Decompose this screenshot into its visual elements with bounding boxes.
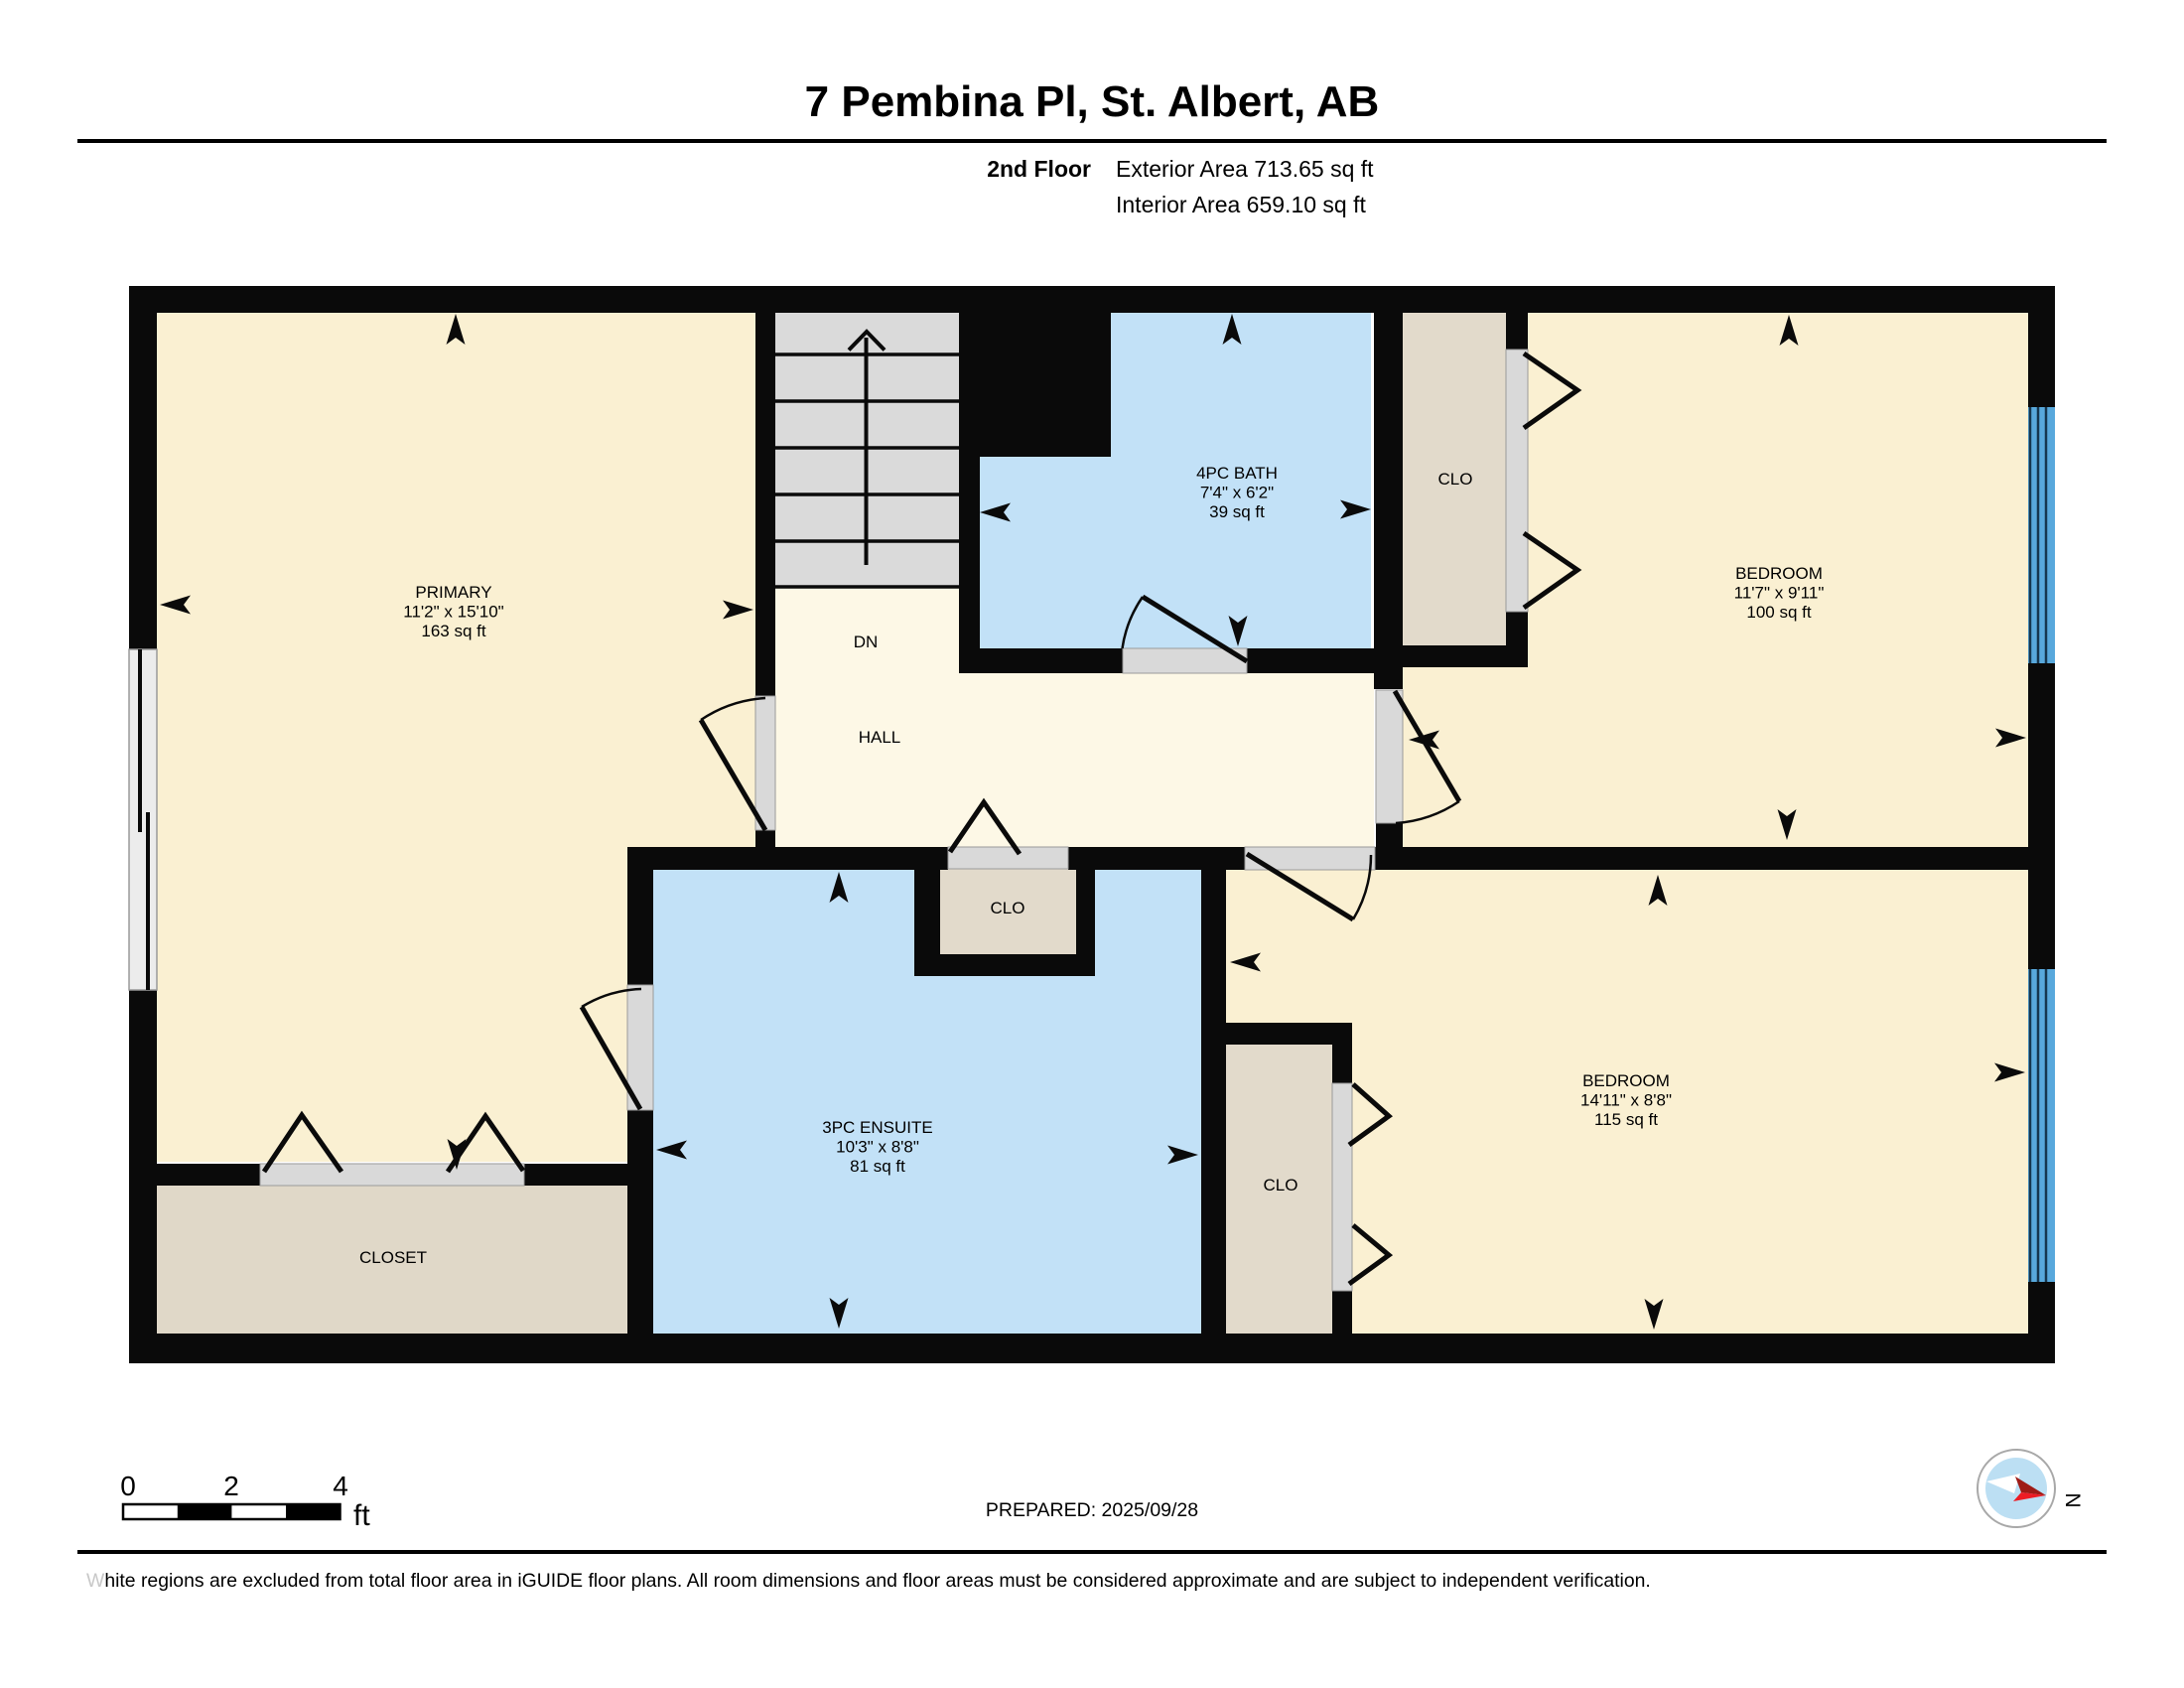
svg-text:DN: DN (854, 633, 879, 651)
svg-text:BEDROOM: BEDROOM (1582, 1071, 1670, 1090)
svg-text:100 sq ft: 100 sq ft (1746, 603, 1811, 622)
svg-text:115 sq ft: 115 sq ft (1594, 1110, 1658, 1129)
svg-text:Interior Area 659.10 sq ft: Interior Area 659.10 sq ft (1116, 192, 1366, 217)
svg-text:4PC BATH: 4PC BATH (1196, 464, 1278, 483)
svg-text:81 sq ft: 81 sq ft (850, 1157, 905, 1176)
svg-text:HALL: HALL (859, 728, 901, 747)
svg-text:7'4" x 6'2": 7'4" x 6'2" (1200, 484, 1274, 502)
svg-text:39 sq ft: 39 sq ft (1209, 502, 1265, 521)
svg-text:2: 2 (223, 1471, 239, 1501)
svg-text:7 Pembina Pl, St. Albert, AB: 7 Pembina Pl, St. Albert, AB (805, 77, 1380, 126)
svg-text:CLOSET: CLOSET (359, 1248, 427, 1267)
svg-text:11'2" x 15'10": 11'2" x 15'10" (403, 603, 503, 622)
svg-text:BEDROOM: BEDROOM (1735, 564, 1823, 583)
svg-text:4: 4 (333, 1471, 348, 1501)
svg-text:11'7" x 9'11": 11'7" x 9'11" (1734, 584, 1825, 603)
svg-text:CLO: CLO (1438, 470, 1473, 489)
svg-text:Exterior Area 713.65 sq ft: Exterior Area 713.65 sq ft (1116, 156, 1374, 182)
svg-text:163 sq ft: 163 sq ft (421, 622, 485, 640)
svg-text:CLO: CLO (1264, 1176, 1298, 1195)
svg-text:2nd Floor: 2nd Floor (987, 156, 1091, 182)
svg-text:ft: ft (353, 1499, 370, 1532)
svg-text:3PC ENSUITE: 3PC ENSUITE (822, 1118, 932, 1137)
svg-text:PREPARED: 2025/09/28: PREPARED: 2025/09/28 (986, 1499, 1198, 1521)
svg-text:N: N (2061, 1492, 2084, 1507)
svg-text:0: 0 (120, 1471, 136, 1501)
svg-text:14'11" x 8'8": 14'11" x 8'8" (1580, 1091, 1672, 1110)
svg-text:White regions are excluded fro: White regions are excluded from total fl… (86, 1570, 1651, 1592)
svg-text:10'3" x 8'8": 10'3" x 8'8" (836, 1138, 919, 1157)
svg-text:CLO: CLO (991, 899, 1025, 917)
svg-text:PRIMARY: PRIMARY (415, 583, 491, 602)
